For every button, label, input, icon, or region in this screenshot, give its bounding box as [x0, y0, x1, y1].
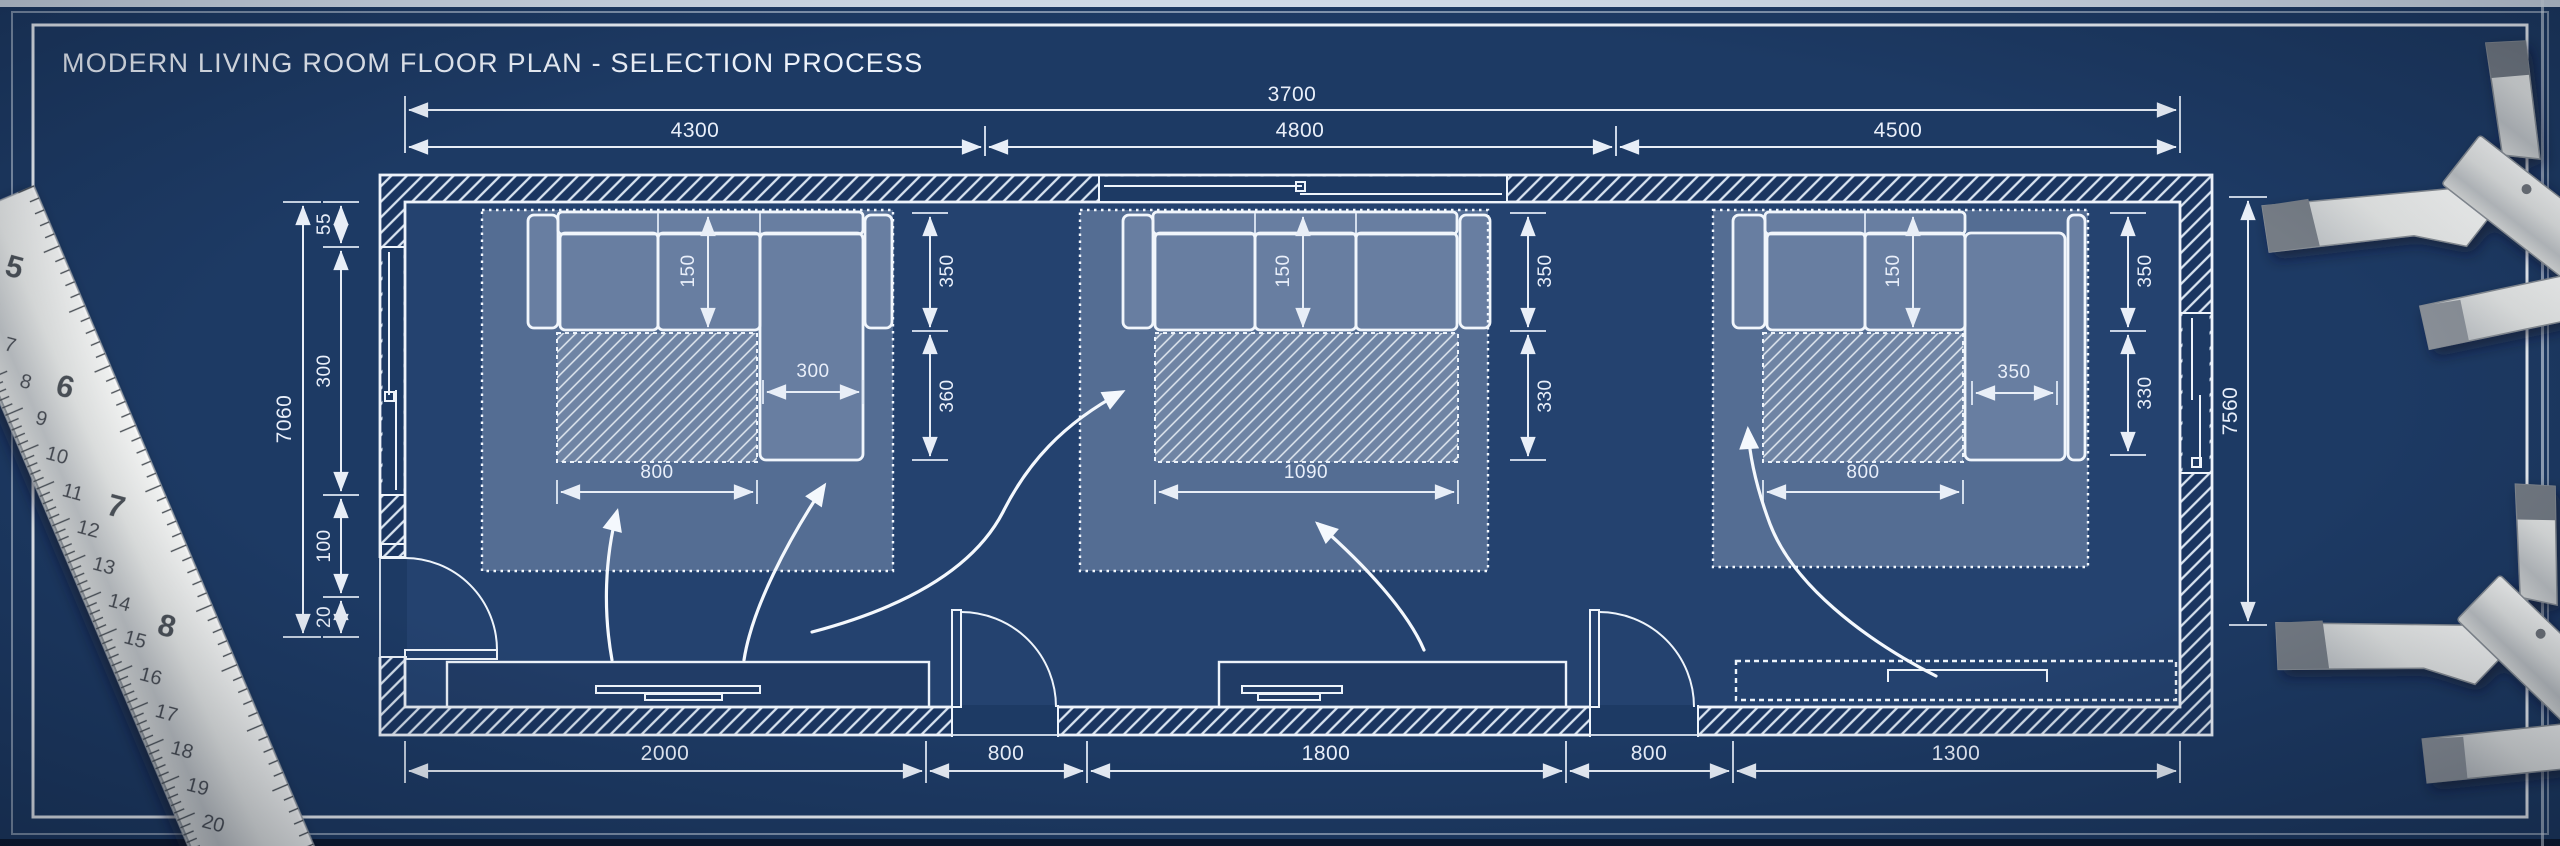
room-2-rug: [1155, 333, 1458, 462]
window-right: [2180, 313, 2212, 473]
dim-label: 150: [678, 254, 699, 287]
sofa-seat: [1767, 233, 1865, 330]
sofa-armrest: [1733, 215, 1765, 328]
dim-label: 330: [1535, 379, 1556, 412]
dim-label: 100: [314, 529, 335, 562]
dim-label: 4500: [1874, 119, 1923, 142]
dim-label: 1090: [1284, 462, 1328, 483]
room-1-rug: [557, 333, 757, 462]
dim-label: 350: [2135, 254, 2156, 287]
dim-label: 300: [796, 361, 829, 382]
dim-label: 4300: [671, 119, 720, 142]
dim-label: 350: [1997, 362, 2030, 383]
sofa-chaise: [760, 233, 863, 460]
sofa-armrest: [2068, 215, 2085, 460]
sofa-seat: [560, 233, 658, 330]
dim-label: 20: [314, 606, 335, 628]
dim-label: 150: [1883, 254, 1904, 287]
top-edge-strip: [0, 0, 2560, 7]
dim-label: 1800: [1302, 742, 1351, 765]
dim-label: 350: [937, 254, 958, 287]
sofa-back: [558, 212, 863, 234]
dim-label: 1300: [1932, 742, 1981, 765]
right-edge-line: [2541, 0, 2544, 846]
dim-label: 7060: [273, 395, 296, 444]
sofa-armrest: [528, 215, 558, 328]
dim-label: 300: [314, 354, 335, 387]
blueprint-canvas: MODERN LIVING ROOM FLOOR PLAN - SELECTIO…: [0, 0, 2560, 846]
sofa-seat: [1155, 233, 1255, 330]
dim-label: 800: [1631, 742, 1668, 765]
dim-label: 800: [1846, 462, 1879, 483]
sofa-seat: [1356, 233, 1457, 330]
sofa-armrest: [1123, 215, 1153, 328]
sofa-armrest: [1460, 215, 1490, 328]
dim-label: 2000: [641, 742, 690, 765]
sofa-seat: [1255, 233, 1356, 330]
sofa-armrest: [865, 215, 892, 328]
window-top: [1099, 175, 1507, 202]
dim-label: 7560: [2219, 387, 2242, 436]
room-3-rug: [1763, 333, 1963, 462]
sofa-back: [1153, 212, 1457, 234]
dim-label: 150: [1273, 254, 1294, 287]
bottom-edge-strip: [0, 839, 2560, 846]
floor-plan: [378, 175, 2212, 737]
dim-label: 360: [937, 379, 958, 412]
room-2-console: [1219, 662, 1566, 707]
dim-label: 800: [640, 462, 673, 483]
window-left: [380, 247, 405, 495]
dim-label: 330: [2135, 376, 2156, 409]
dim-label: 350: [1535, 254, 1556, 287]
dim-label: 55: [314, 213, 335, 235]
sofa-seat: [1865, 233, 1965, 330]
page-title: MODERN LIVING ROOM FLOOR PLAN - SELECTIO…: [62, 48, 923, 78]
room-1-console: [447, 662, 929, 707]
sofa-chaise: [1965, 233, 2065, 460]
dim-label: 3700: [1268, 83, 1317, 106]
wall-bottom: [380, 707, 2212, 735]
dim-label: 4800: [1276, 119, 1325, 142]
dim-label: 800: [988, 742, 1025, 765]
room-2-sofa: [1123, 212, 1490, 330]
